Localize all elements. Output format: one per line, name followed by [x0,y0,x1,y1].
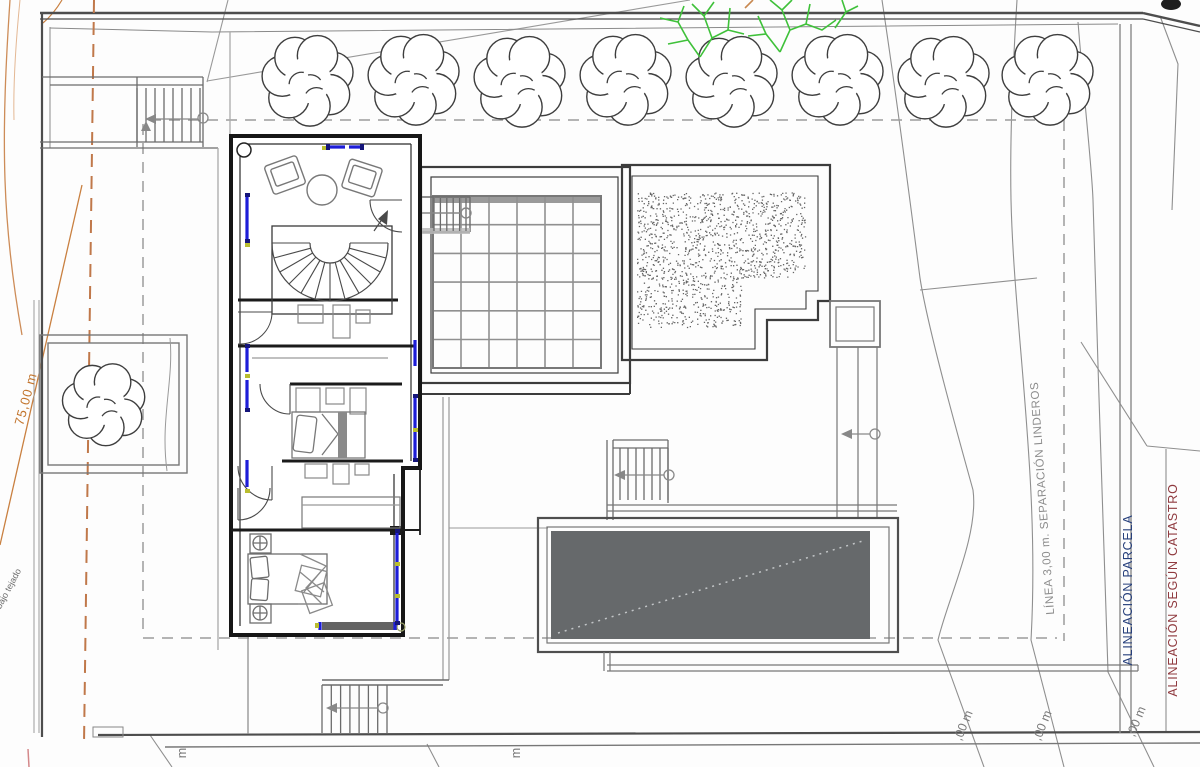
column [237,143,251,157]
tree [580,35,671,126]
boundary-marker-dot [1161,0,1181,10]
tree [1002,35,1093,126]
tree [62,364,144,446]
alineacion-catastro-label: ALINEACIÓN SEGÚN CATASTRO [1165,483,1180,696]
gravel-terrace [622,165,830,360]
tree [368,35,459,126]
access-stair-topleft [40,32,230,650]
main-house [231,136,420,635]
pool-water [551,531,870,639]
side-ramp [830,301,880,518]
middle-stair [607,440,674,520]
tiled-terrace [421,167,630,394]
dim-fragment-2: ,00 m [1030,708,1055,742]
tree [686,37,777,128]
m-label-left: m [175,748,189,758]
site-plan: 75,00 m bajo tejado LÍNEA 3,00 m. SEPARA… [0,0,1200,767]
site-plan-drawing: 75,00 m bajo tejado LÍNEA 3,00 m. SEPARA… [0,0,1200,767]
m-label-mid: m [509,748,523,758]
tree [898,37,989,128]
tree [792,35,883,126]
tree [474,37,565,128]
alineacion-parcela-label: ALINEACIÓN PARCELA [1120,514,1135,665]
dimension-75m-label: 75,00 m [11,371,39,427]
pool [449,505,1138,671]
bajo-tejado-label: bajo tejado [0,567,23,611]
tree [262,36,353,127]
dim-fragment-1: ,00 m [951,708,976,742]
setback-line-label: LÍNEA 3,00 m. SEPARACIÓN LINDEROS [1028,381,1057,615]
gravel-stipple [637,193,806,328]
dim-fragment-3: ,00 m [1124,704,1149,738]
window-sill [322,622,397,630]
direction-arrow [841,429,852,439]
